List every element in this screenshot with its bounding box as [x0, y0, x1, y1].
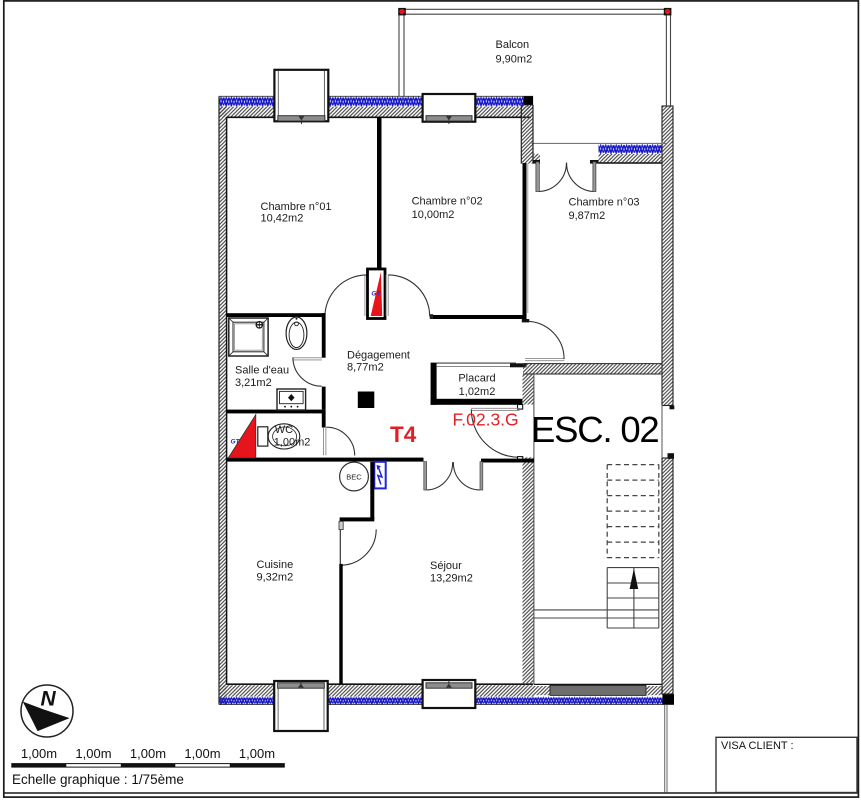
svg-text:Chambre n°01: Chambre n°01 [261, 201, 332, 213]
svg-text:1,00m: 1,00m [21, 746, 57, 761]
svg-text:BEC: BEC [346, 473, 362, 482]
svg-text:9,32m2: 9,32m2 [257, 572, 294, 584]
svg-text:ESC. 02: ESC. 02 [531, 409, 659, 450]
svg-text:Dégagement: Dégagement [347, 349, 410, 361]
svg-text:Cuisine: Cuisine [257, 559, 294, 571]
svg-text:GT: GT [231, 439, 241, 446]
svg-text:9,87m2: 9,87m2 [569, 210, 606, 222]
svg-text:8,77m2: 8,77m2 [347, 362, 384, 374]
svg-text:1,00m: 1,00m [75, 746, 111, 761]
svg-text:1,00m: 1,00m [184, 746, 220, 761]
svg-text:F.02.3.G: F.02.3.G [453, 409, 519, 429]
svg-text:9,90m2: 9,90m2 [496, 54, 533, 66]
svg-text:T4: T4 [390, 422, 417, 447]
svg-text:VISA CLIENT :: VISA CLIENT : [721, 740, 794, 752]
svg-text:10,00m2: 10,00m2 [412, 209, 455, 221]
svg-text:1,00m2: 1,00m2 [274, 436, 311, 448]
svg-text:3,21m2: 3,21m2 [235, 377, 272, 389]
svg-text:Placard: Placard [458, 373, 495, 385]
svg-text:Echelle graphique : 1/75ème: Echelle graphique : 1/75ème [12, 772, 184, 787]
svg-text:Séjour: Séjour [430, 560, 462, 572]
svg-text:WC: WC [275, 424, 293, 436]
svg-text:1,00m: 1,00m [130, 746, 166, 761]
svg-text:Balcon: Balcon [496, 39, 530, 51]
svg-text:1,00m: 1,00m [239, 746, 275, 761]
svg-text:GT: GT [371, 291, 381, 298]
svg-text:Salle d'eau: Salle d'eau [235, 365, 289, 377]
svg-text:Chambre n°03: Chambre n°03 [569, 197, 640, 209]
svg-text:1,02m2: 1,02m2 [459, 386, 496, 398]
svg-text:10,42m2: 10,42m2 [261, 212, 304, 224]
svg-text:N: N [41, 688, 57, 711]
svg-text:Chambre n°02: Chambre n°02 [412, 196, 483, 208]
svg-text:13,29m2: 13,29m2 [430, 572, 473, 584]
